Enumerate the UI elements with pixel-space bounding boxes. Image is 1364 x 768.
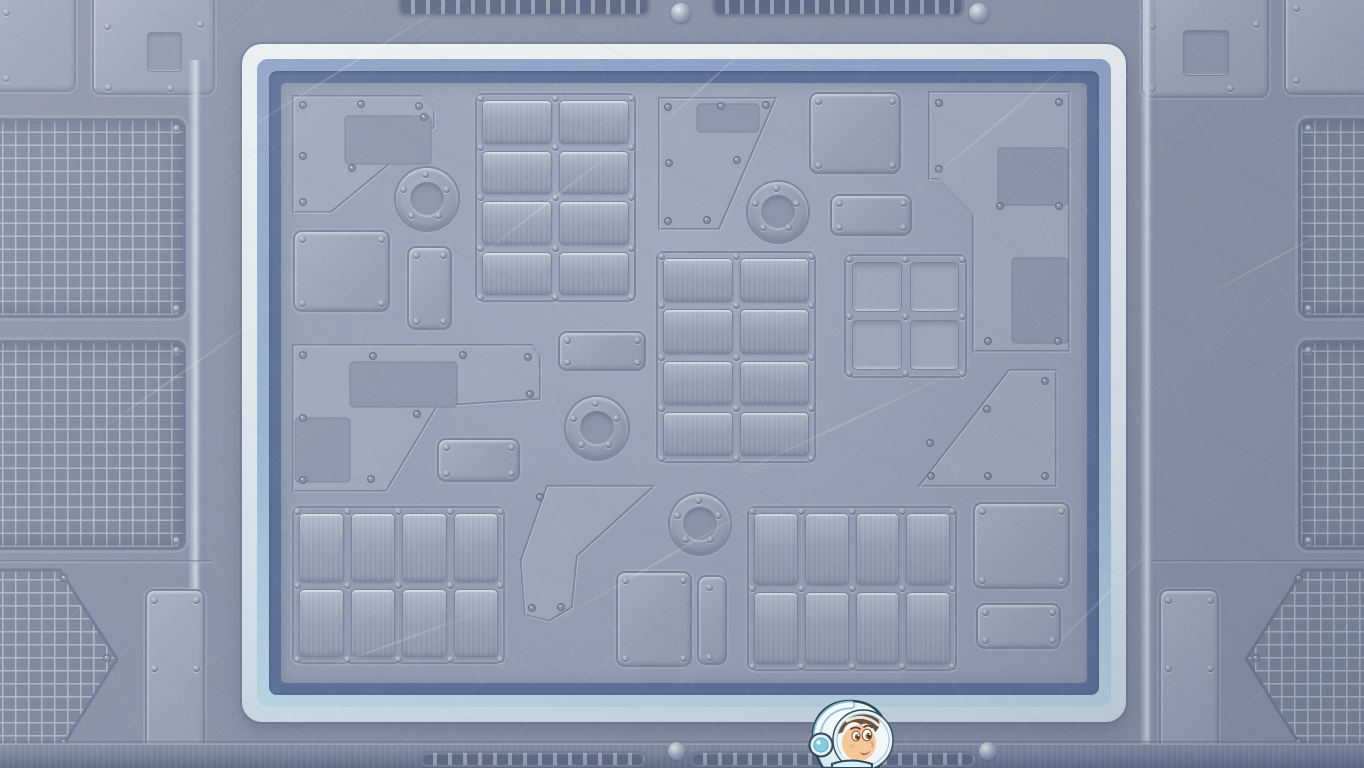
floor-plate bbox=[402, 589, 447, 658]
rivet-icon bbox=[395, 582, 402, 589]
rivet-icon bbox=[1049, 637, 1056, 644]
rivet-icon bbox=[395, 508, 402, 515]
floor-plate bbox=[299, 513, 344, 582]
rivet-icon bbox=[447, 508, 454, 515]
rivet-icon bbox=[1049, 609, 1056, 616]
rivet-icon bbox=[477, 144, 484, 151]
rivet-icon bbox=[552, 144, 559, 151]
rivet-icon bbox=[400, 186, 407, 193]
rivet-icon bbox=[899, 508, 906, 515]
floor-window bbox=[852, 262, 902, 312]
rivet-icon bbox=[849, 663, 856, 670]
rivet-icon bbox=[733, 405, 740, 412]
rivet-icon bbox=[299, 236, 306, 243]
floor-plate bbox=[351, 589, 396, 658]
rivet-icon bbox=[715, 512, 722, 519]
rivet-icon bbox=[578, 441, 585, 448]
rivet-icon bbox=[552, 95, 559, 102]
plate-grid bbox=[747, 506, 957, 671]
rivet-icon bbox=[949, 585, 956, 592]
rivet-icon bbox=[902, 256, 909, 263]
floor-plate bbox=[856, 592, 900, 664]
rivet-icon bbox=[447, 582, 454, 589]
suit-collar bbox=[832, 761, 872, 768]
rivet-icon bbox=[497, 508, 504, 515]
visor-glass bbox=[835, 712, 891, 768]
rivet-icon bbox=[395, 656, 402, 663]
floor-plate bbox=[559, 252, 629, 296]
floor-plate bbox=[559, 100, 629, 144]
floor-plate bbox=[559, 201, 629, 245]
floor-plate bbox=[559, 151, 629, 195]
rivet-icon bbox=[889, 98, 896, 105]
panel bbox=[616, 571, 692, 667]
floor-plate bbox=[663, 361, 733, 405]
rivet-icon bbox=[413, 252, 420, 259]
rivet-icon bbox=[408, 212, 415, 219]
rivet-icon bbox=[982, 609, 989, 616]
rivet-icon bbox=[477, 245, 484, 252]
rivet-icon bbox=[422, 171, 429, 178]
rivet-icon bbox=[294, 656, 301, 663]
rivet-icon bbox=[658, 354, 665, 361]
floor-window bbox=[852, 320, 902, 370]
rivet-icon bbox=[979, 577, 986, 584]
window-grid bbox=[844, 254, 967, 378]
floor-plate bbox=[906, 513, 950, 585]
ear-cup-glint bbox=[817, 741, 821, 745]
rivet-icon bbox=[440, 318, 447, 325]
rivet-icon bbox=[815, 162, 822, 169]
floor-plate bbox=[454, 589, 499, 658]
floor-plate bbox=[740, 309, 810, 353]
panel bbox=[558, 331, 646, 371]
rivet-icon bbox=[658, 302, 665, 309]
floor-plate bbox=[856, 513, 900, 585]
floor-plate bbox=[740, 412, 810, 456]
rivet-icon bbox=[477, 294, 484, 301]
panel bbox=[976, 603, 1061, 649]
rivet-icon bbox=[752, 200, 759, 207]
floor-plate bbox=[482, 252, 552, 296]
rivet-icon bbox=[658, 405, 665, 412]
porthole bbox=[396, 168, 458, 230]
rivet-icon bbox=[706, 584, 713, 591]
rivet-icon bbox=[849, 508, 856, 515]
rivet-icon bbox=[378, 300, 385, 307]
rivet-icon bbox=[613, 415, 620, 422]
floor-plate bbox=[805, 513, 849, 585]
rivet-icon bbox=[344, 508, 351, 515]
rivet-icon bbox=[622, 577, 629, 584]
rivet-icon bbox=[836, 200, 843, 207]
rivet-icon bbox=[836, 224, 843, 231]
rivet-icon bbox=[622, 655, 629, 662]
rivet-icon bbox=[564, 359, 571, 366]
rivet-icon bbox=[508, 444, 515, 451]
floor-window bbox=[910, 262, 960, 312]
plate-grid bbox=[475, 93, 636, 302]
rivet-icon bbox=[440, 252, 447, 259]
rivet-icon bbox=[680, 655, 687, 662]
rivet-icon bbox=[413, 318, 420, 325]
rivet-icon bbox=[634, 359, 641, 366]
rivet-icon bbox=[658, 253, 665, 260]
rivet-icon bbox=[1058, 577, 1065, 584]
rivet-icon bbox=[707, 536, 714, 543]
panel bbox=[973, 502, 1070, 589]
rivet-icon bbox=[497, 656, 504, 663]
rivet-icon bbox=[552, 194, 559, 201]
rivet-icon bbox=[706, 654, 713, 661]
floor-plate bbox=[740, 258, 810, 302]
player-character-astronaut-kid[interactable] bbox=[804, 698, 896, 768]
panel bbox=[830, 194, 912, 236]
rivet-icon bbox=[477, 95, 484, 102]
rivet-icon bbox=[979, 508, 986, 515]
floor-plate bbox=[805, 592, 849, 664]
ear-cup-center bbox=[814, 738, 828, 752]
panel bbox=[437, 438, 520, 482]
panel bbox=[293, 230, 390, 312]
rivet-icon bbox=[435, 212, 442, 219]
rivet-icon bbox=[733, 354, 740, 361]
rivet-icon bbox=[846, 256, 853, 263]
floor-plate bbox=[663, 258, 733, 302]
rivet-icon bbox=[552, 245, 559, 252]
panel bbox=[809, 92, 901, 174]
panel bbox=[407, 246, 452, 330]
floor-plate bbox=[754, 513, 798, 585]
rivet-icon bbox=[570, 415, 577, 422]
floor-plate bbox=[754, 592, 798, 664]
porthole bbox=[566, 397, 628, 459]
rivet-icon bbox=[949, 508, 956, 515]
wedge-panel bbox=[915, 366, 1064, 494]
rivet-icon bbox=[508, 470, 515, 477]
rivet-icon bbox=[798, 585, 805, 592]
rivet-icon bbox=[634, 337, 641, 344]
floor-plate bbox=[663, 412, 733, 456]
rivet-icon bbox=[552, 294, 559, 301]
rivet-icon bbox=[749, 663, 756, 670]
porthole bbox=[748, 182, 808, 242]
rivet-icon bbox=[695, 497, 702, 504]
rivet-icon bbox=[749, 585, 756, 592]
rivet-icon bbox=[773, 185, 780, 192]
rivet-icon bbox=[798, 663, 805, 670]
rivet-icon bbox=[889, 162, 896, 169]
rivet-icon bbox=[949, 663, 956, 670]
rivet-icon bbox=[902, 370, 909, 377]
arena-floor-panels bbox=[0, 0, 1364, 768]
rivet-icon bbox=[733, 253, 740, 260]
rivet-icon bbox=[733, 455, 740, 462]
rivet-icon bbox=[299, 300, 306, 307]
rivet-icon bbox=[959, 256, 966, 263]
rivet-icon bbox=[674, 512, 681, 519]
rivet-icon bbox=[808, 405, 815, 412]
rivet-icon bbox=[846, 313, 853, 320]
rivet-icon bbox=[899, 663, 906, 670]
floor-plate bbox=[482, 100, 552, 144]
rivet-icon bbox=[344, 656, 351, 663]
rivet-icon bbox=[477, 194, 484, 201]
rivet-icon bbox=[628, 294, 635, 301]
floor-plate bbox=[299, 589, 344, 658]
rivet-icon bbox=[658, 455, 665, 462]
rivet-icon bbox=[605, 441, 612, 448]
rivet-icon bbox=[808, 302, 815, 309]
rivet-icon bbox=[443, 186, 450, 193]
rivet-icon bbox=[899, 585, 906, 592]
rivet-icon bbox=[900, 200, 907, 207]
rivet-icon bbox=[378, 236, 385, 243]
rivet-icon bbox=[808, 455, 815, 462]
floor-plate bbox=[351, 513, 396, 582]
floor-plate bbox=[402, 513, 447, 582]
rivet-icon bbox=[592, 400, 599, 407]
rivet-icon bbox=[1058, 508, 1065, 515]
rivet-icon bbox=[849, 585, 856, 592]
floor-window bbox=[910, 320, 960, 370]
rivet-icon bbox=[564, 337, 571, 344]
rivet-icon bbox=[808, 354, 815, 361]
rivet-icon bbox=[294, 508, 301, 515]
rivet-icon bbox=[900, 224, 907, 231]
rivet-icon bbox=[344, 582, 351, 589]
rivet-icon bbox=[682, 536, 689, 543]
rivet-icon bbox=[815, 98, 822, 105]
floor-plate bbox=[663, 309, 733, 353]
rivet-icon bbox=[982, 637, 989, 644]
floor-plate bbox=[740, 361, 810, 405]
porthole bbox=[670, 494, 730, 554]
rivet-icon bbox=[443, 470, 450, 477]
floor-plate bbox=[454, 513, 499, 582]
rivet-icon bbox=[497, 582, 504, 589]
astronaut-kid-sprite bbox=[804, 698, 896, 768]
plate-grid bbox=[656, 251, 816, 463]
rivet-icon bbox=[808, 253, 815, 260]
rivet-icon bbox=[785, 224, 792, 231]
rivet-icon bbox=[959, 313, 966, 320]
rivet-icon bbox=[793, 200, 800, 207]
floor-plate bbox=[482, 201, 552, 245]
rivet-icon bbox=[443, 444, 450, 451]
rivet-icon bbox=[902, 313, 909, 320]
rivet-icon bbox=[798, 508, 805, 515]
floor-plate bbox=[906, 592, 950, 664]
rivet-icon bbox=[628, 194, 635, 201]
rivet-icon bbox=[680, 577, 687, 584]
rivet-icon bbox=[628, 144, 635, 151]
rivet-icon bbox=[294, 582, 301, 589]
plate-grid bbox=[292, 506, 505, 664]
rivet-icon bbox=[733, 302, 740, 309]
rivet-icon bbox=[760, 224, 767, 231]
rivet-icon bbox=[447, 656, 454, 663]
rivet-icon bbox=[749, 508, 756, 515]
rivet-icon bbox=[628, 95, 635, 102]
floor-plate bbox=[482, 151, 552, 195]
game-scene bbox=[0, 0, 1364, 768]
panel bbox=[697, 575, 727, 665]
rivet-icon bbox=[628, 245, 635, 252]
rivet-icon bbox=[846, 370, 853, 377]
